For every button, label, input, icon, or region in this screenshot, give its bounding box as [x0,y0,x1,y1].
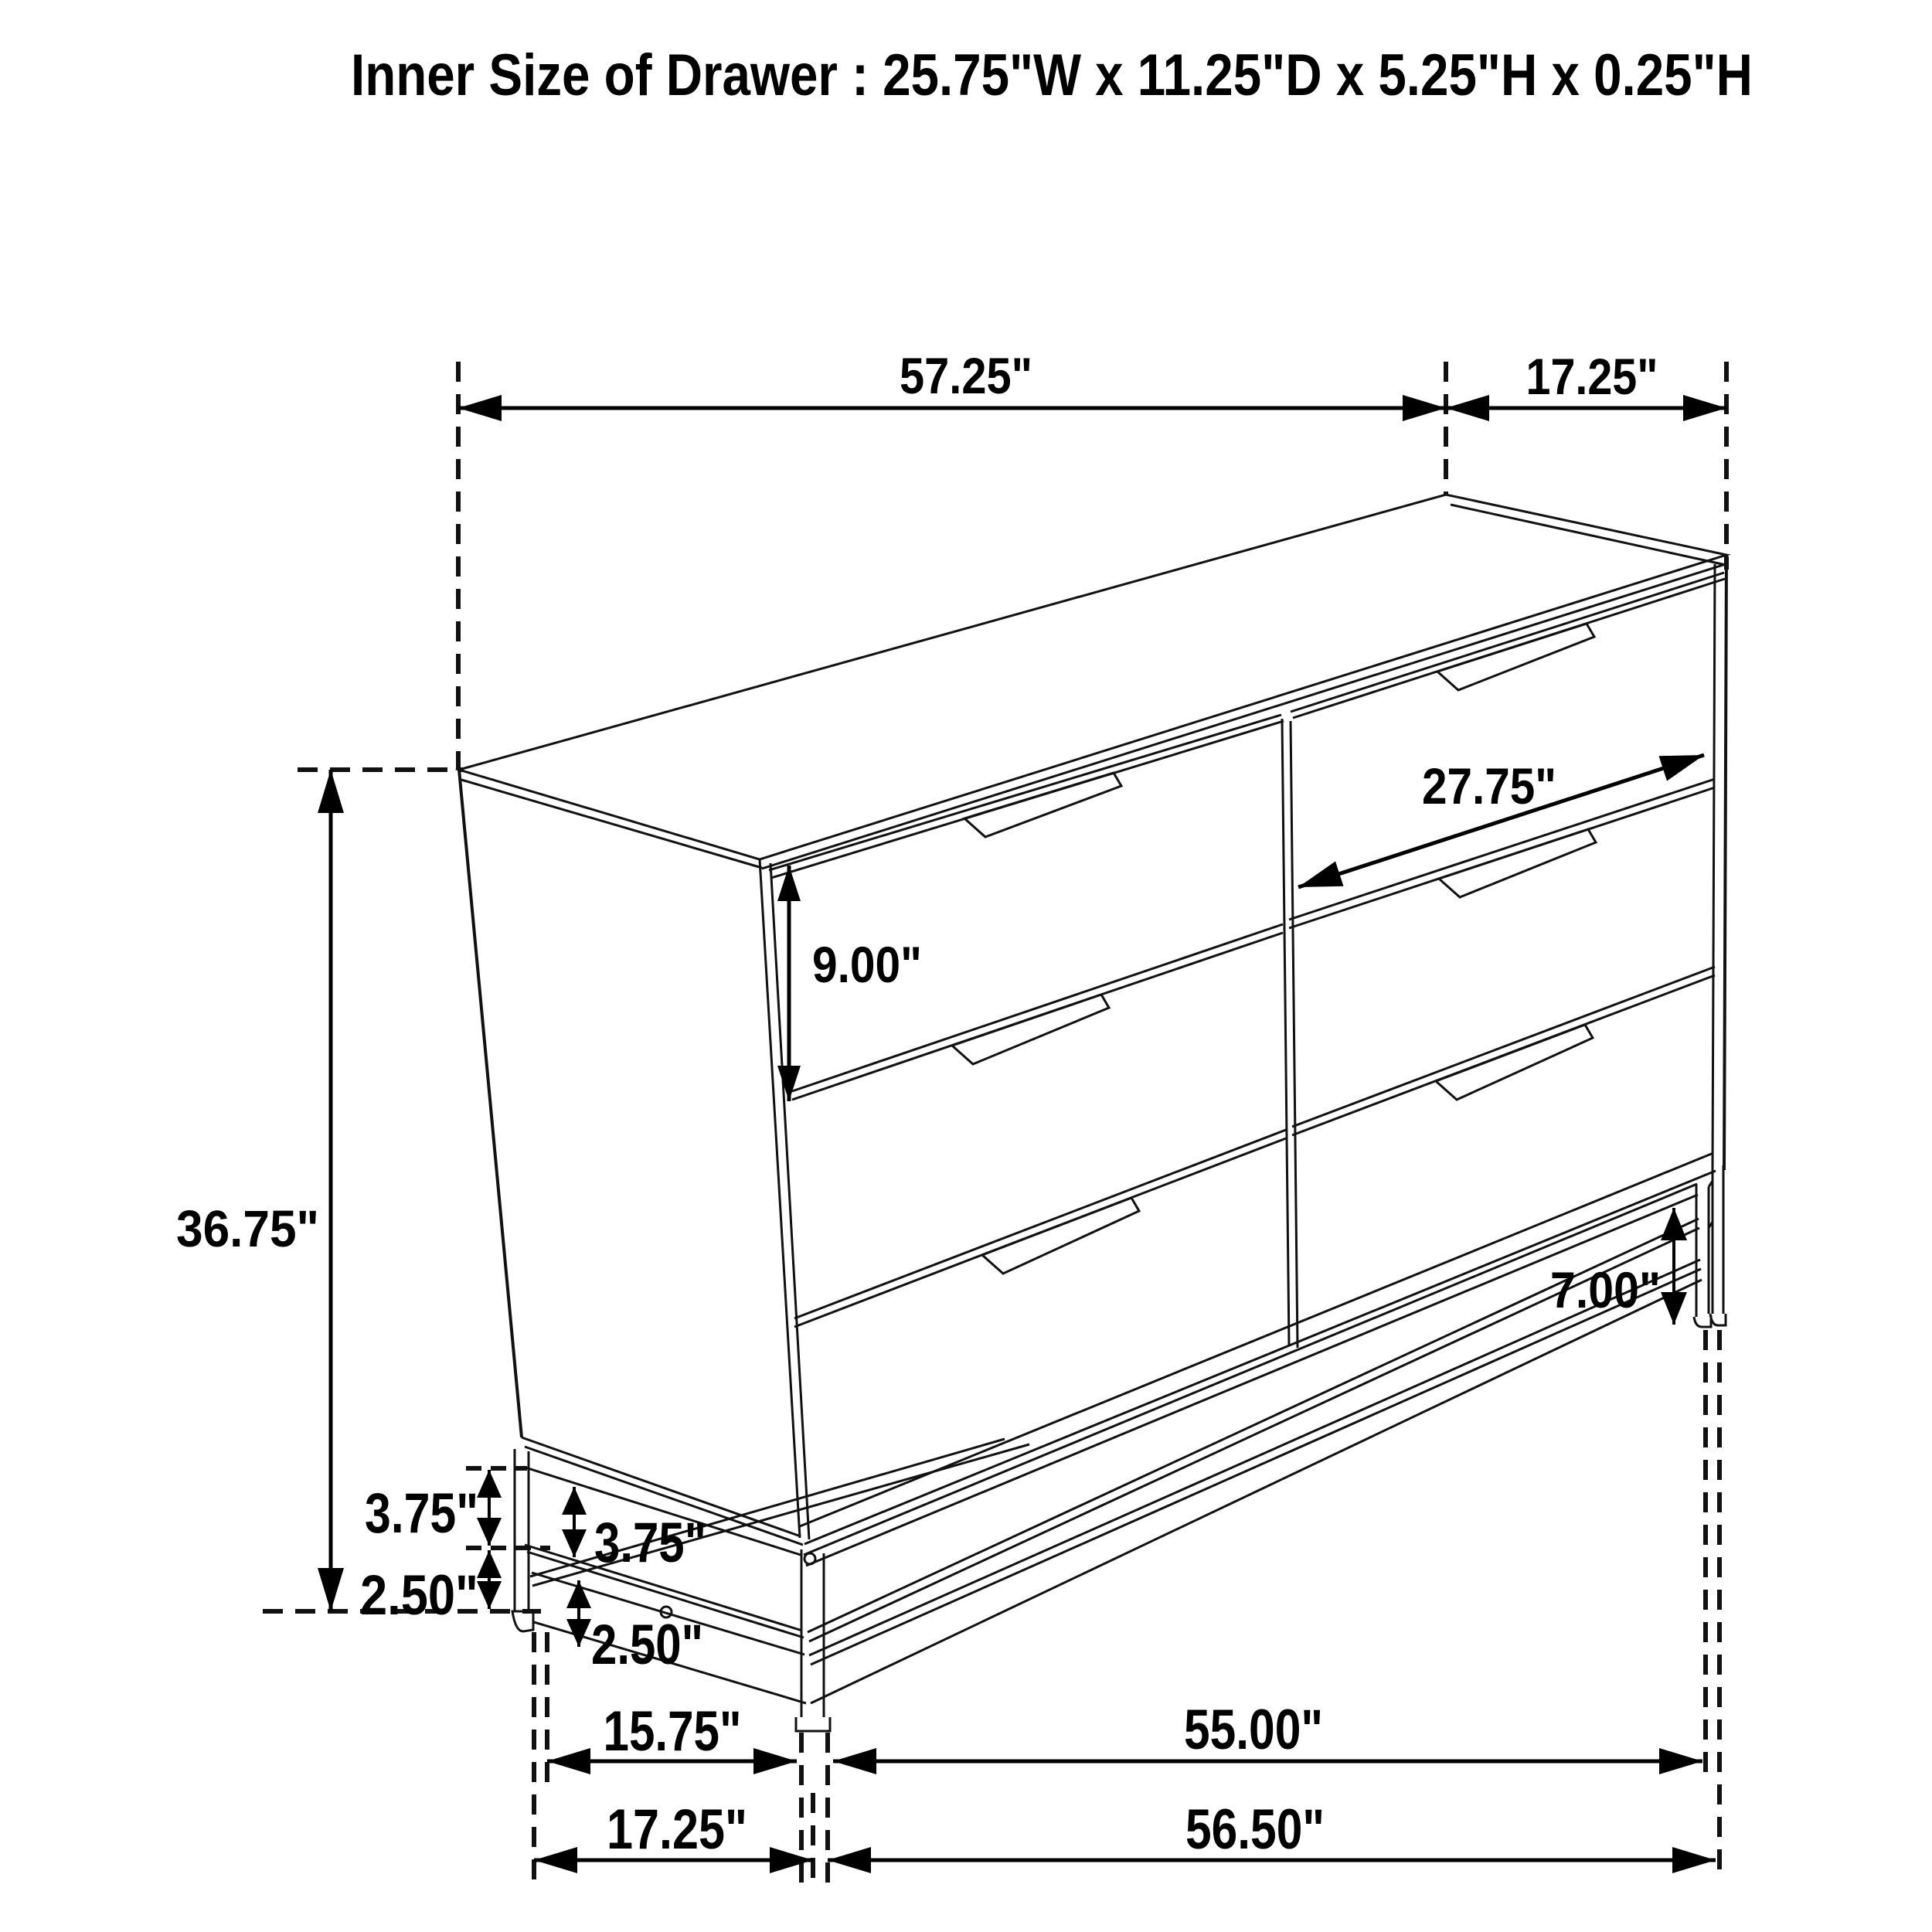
svg-text:3.75": 3.75" [594,1512,706,1574]
svg-text:2.50": 2.50" [591,1614,703,1676]
svg-text:36.75": 36.75" [176,1200,319,1258]
svg-text:55.00": 55.00" [1184,1699,1323,1761]
svg-text:56.50": 56.50" [1185,1798,1325,1861]
svg-text:9.00": 9.00" [812,936,922,993]
svg-text:17.25": 17.25" [1526,348,1658,405]
svg-text:Inner Size of Drawer : 25.75"W: Inner Size of Drawer : 25.75"W x 11.25"D… [351,43,1753,108]
svg-text:15.75": 15.75" [604,1700,742,1763]
svg-text:2.50": 2.50" [360,1564,478,1627]
svg-text:57.25": 57.25" [900,347,1032,404]
svg-text:7.00": 7.00" [1550,1261,1661,1318]
svg-text:3.75": 3.75" [365,1482,478,1545]
svg-text:17.25": 17.25" [607,1798,747,1861]
svg-text:27.75": 27.75" [1422,757,1556,815]
